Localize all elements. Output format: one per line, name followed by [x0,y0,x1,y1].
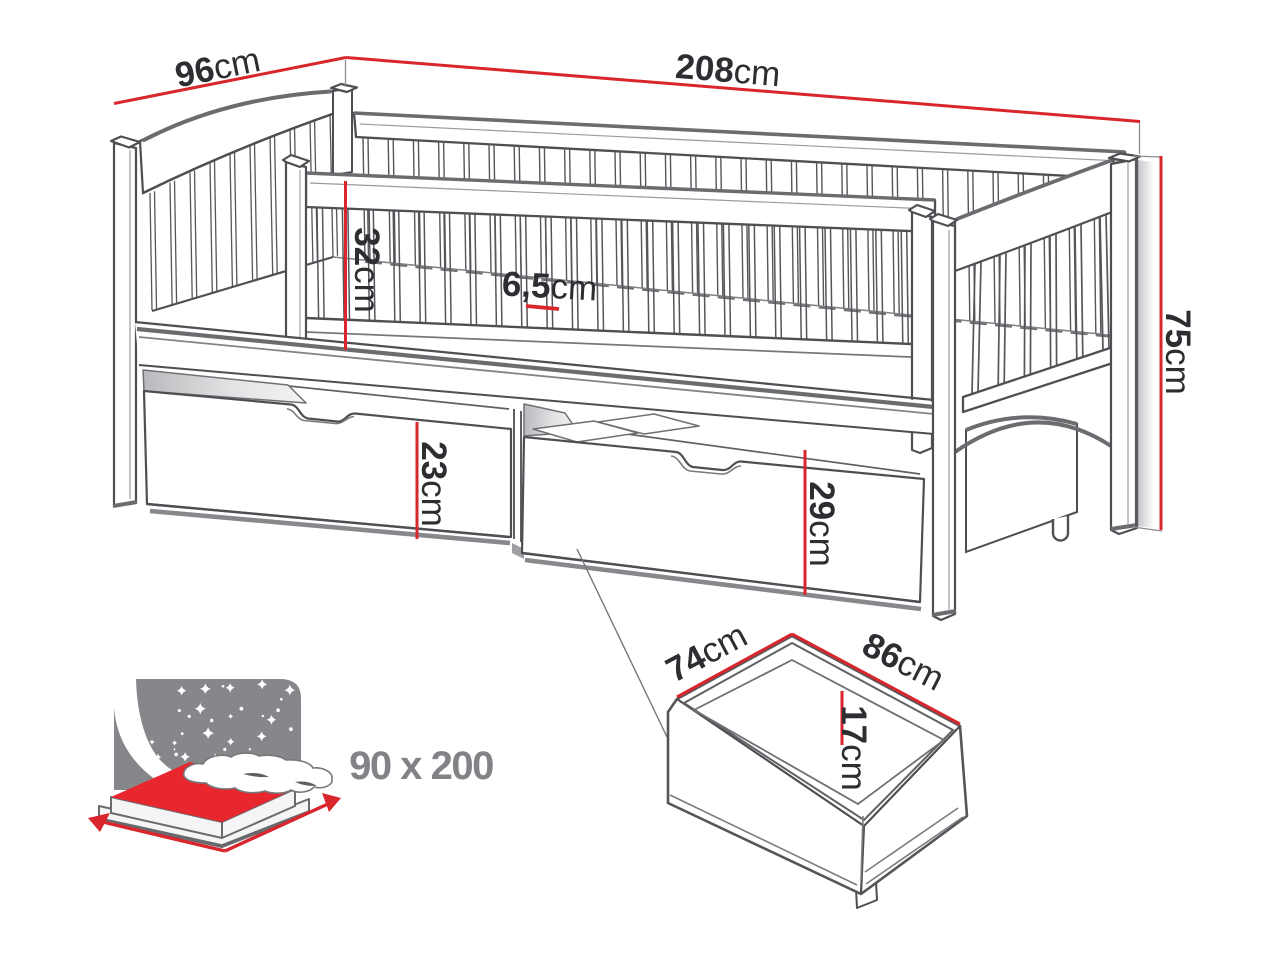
svg-text:23cm: 23cm [414,441,453,527]
svg-text:6,5cm: 6,5cm [501,265,598,309]
svg-text:90 x 200: 90 x 200 [349,744,493,788]
svg-text:32cm: 32cm [347,227,386,313]
svg-text:75cm: 75cm [1158,309,1197,395]
svg-text:29cm: 29cm [802,481,841,567]
svg-text:17cm: 17cm [834,705,873,791]
